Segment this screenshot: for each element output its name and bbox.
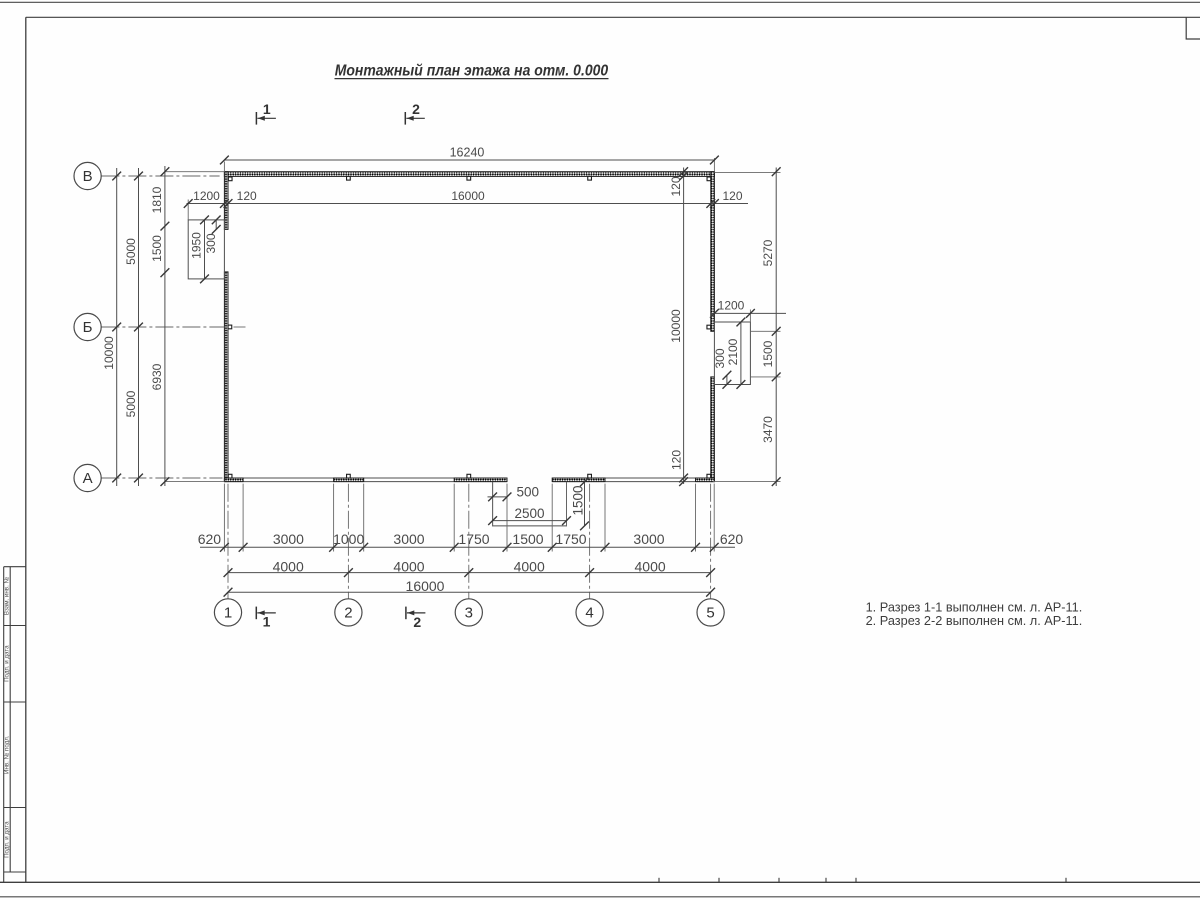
- svg-text:120: 120: [669, 176, 683, 196]
- svg-text:120: 120: [237, 189, 257, 203]
- svg-text:1750: 1750: [555, 531, 586, 547]
- svg-text:1200: 1200: [718, 299, 745, 313]
- svg-text:2: 2: [413, 614, 421, 630]
- svg-text:1500: 1500: [150, 235, 164, 262]
- svg-text:6930: 6930: [150, 363, 164, 390]
- svg-text:620: 620: [720, 531, 744, 547]
- svg-text:4000: 4000: [393, 558, 424, 574]
- svg-text:10000: 10000: [102, 336, 116, 370]
- svg-text:В: В: [83, 168, 93, 185]
- svg-text:Инв. № подл.: Инв. № подл.: [4, 735, 11, 774]
- svg-text:1810: 1810: [150, 186, 164, 213]
- svg-text:3: 3: [465, 605, 473, 622]
- svg-text:16000: 16000: [406, 578, 445, 594]
- svg-text:3470: 3470: [761, 416, 775, 443]
- svg-text:10000: 10000: [669, 309, 683, 343]
- svg-text:5000: 5000: [124, 390, 138, 417]
- svg-text:1: 1: [224, 605, 232, 622]
- svg-text:5: 5: [706, 605, 714, 622]
- svg-text:1500: 1500: [761, 340, 775, 367]
- svg-text:1750: 1750: [458, 531, 489, 547]
- svg-text:3000: 3000: [393, 531, 424, 547]
- svg-text:4000: 4000: [273, 558, 304, 574]
- svg-text:120: 120: [722, 189, 742, 203]
- svg-text:4000: 4000: [514, 558, 545, 574]
- svg-text:1500: 1500: [570, 485, 585, 515]
- svg-text:300: 300: [713, 348, 727, 368]
- svg-text:16000: 16000: [451, 189, 485, 203]
- svg-text:300: 300: [204, 233, 218, 253]
- svg-text:2100: 2100: [726, 338, 740, 365]
- svg-text:1000: 1000: [333, 531, 364, 547]
- svg-text:2. Разрез 2-2 выполнен см. л.: 2. Разрез 2-2 выполнен см. л. АР-11.: [866, 613, 1083, 628]
- svg-text:Подп. и дата: Подп. и дата: [4, 821, 11, 858]
- svg-text:500: 500: [517, 484, 540, 499]
- svg-text:А: А: [83, 470, 93, 487]
- svg-text:1950: 1950: [189, 232, 203, 259]
- svg-text:2: 2: [412, 101, 420, 117]
- svg-text:1200: 1200: [193, 189, 220, 203]
- svg-text:Монтажный план этажа на отм. 0: Монтажный план этажа на отм. 0.000: [335, 62, 609, 79]
- svg-text:3000: 3000: [273, 531, 304, 547]
- svg-text:5000: 5000: [124, 238, 138, 265]
- svg-text:2: 2: [344, 605, 352, 622]
- svg-text:4000: 4000: [635, 558, 666, 574]
- svg-text:1500: 1500: [512, 531, 543, 547]
- svg-text:2500: 2500: [514, 506, 544, 521]
- svg-text:620: 620: [198, 531, 222, 547]
- svg-text:1: 1: [263, 614, 271, 630]
- svg-text:5270: 5270: [761, 239, 775, 266]
- svg-text:16240: 16240: [450, 146, 485, 160]
- svg-text:Б: Б: [83, 319, 93, 336]
- svg-text:Подп. и дата: Подп. и дата: [4, 645, 11, 682]
- svg-text:3000: 3000: [633, 531, 664, 547]
- svg-text:1: 1: [263, 101, 271, 117]
- svg-text:120: 120: [669, 450, 683, 470]
- svg-text:4: 4: [585, 605, 593, 622]
- svg-text:Взам. инв. №: Взам. инв. №: [4, 576, 11, 615]
